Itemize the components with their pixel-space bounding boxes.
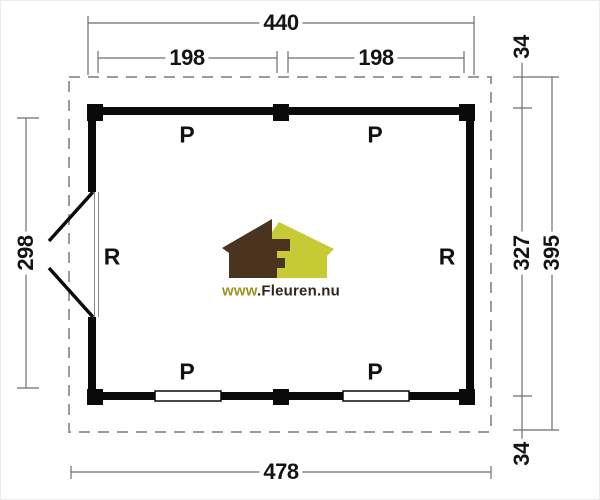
marker-p-top-left: P bbox=[179, 124, 194, 147]
logo-houses bbox=[222, 219, 334, 278]
post-bottom-center bbox=[273, 389, 289, 405]
window-opening-right bbox=[343, 391, 409, 401]
marker-r-left: R bbox=[104, 246, 121, 269]
dim-label-right-wall: 327 bbox=[511, 231, 533, 274]
dim-label-overhang-top: 34 bbox=[511, 31, 533, 62]
wall-right bbox=[466, 107, 474, 400]
dim-label-bay-left: 198 bbox=[165, 47, 208, 69]
dim-label-right-total: 395 bbox=[541, 231, 563, 274]
logo-text: www.Fleuren.nu bbox=[222, 284, 340, 299]
dim-label-left-inner: 298 bbox=[15, 231, 37, 274]
dim-label-bay-right: 198 bbox=[354, 47, 397, 69]
dim-label-top-total: 440 bbox=[259, 12, 302, 34]
marker-p-bottom-left: P bbox=[179, 361, 194, 384]
dim-label-overhang-bottom: 34 bbox=[511, 438, 533, 469]
wall-left-lower bbox=[88, 317, 96, 400]
post-bottom-left bbox=[87, 389, 103, 405]
dim-label-bottom-total: 478 bbox=[259, 461, 302, 483]
marker-p-bottom-right: P bbox=[367, 361, 382, 384]
door-leaf-bottom bbox=[49, 268, 93, 317]
marker-r-right: R bbox=[439, 246, 456, 269]
post-bottom-right bbox=[459, 389, 475, 405]
post-top-right bbox=[459, 104, 475, 121]
window-opening-left bbox=[155, 391, 221, 401]
marker-p-top-right: P bbox=[367, 124, 382, 147]
door-leaf-top bbox=[49, 192, 93, 241]
floor-plan-drawing: 440 198 198 478 298 34 327 395 34 P P P … bbox=[0, 0, 600, 500]
door-opening bbox=[49, 192, 99, 317]
post-top-left bbox=[87, 104, 103, 121]
post-top-center bbox=[273, 104, 289, 121]
logo-www-part: www bbox=[222, 283, 257, 300]
logo-domain-part: .Fleuren.nu bbox=[257, 283, 340, 300]
